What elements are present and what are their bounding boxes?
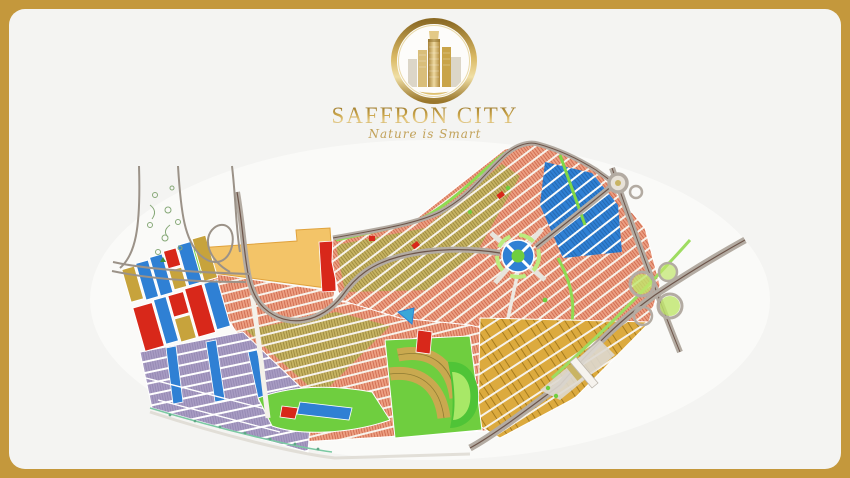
master-plan-map <box>9 9 841 469</box>
red-block <box>280 406 298 419</box>
gold-frame-canvas: SAFFRON CITY Nature is Smart <box>9 9 841 469</box>
saffron-city-page: { "brand": { "title": "SAFFRON CITY", "t… <box>0 0 850 478</box>
